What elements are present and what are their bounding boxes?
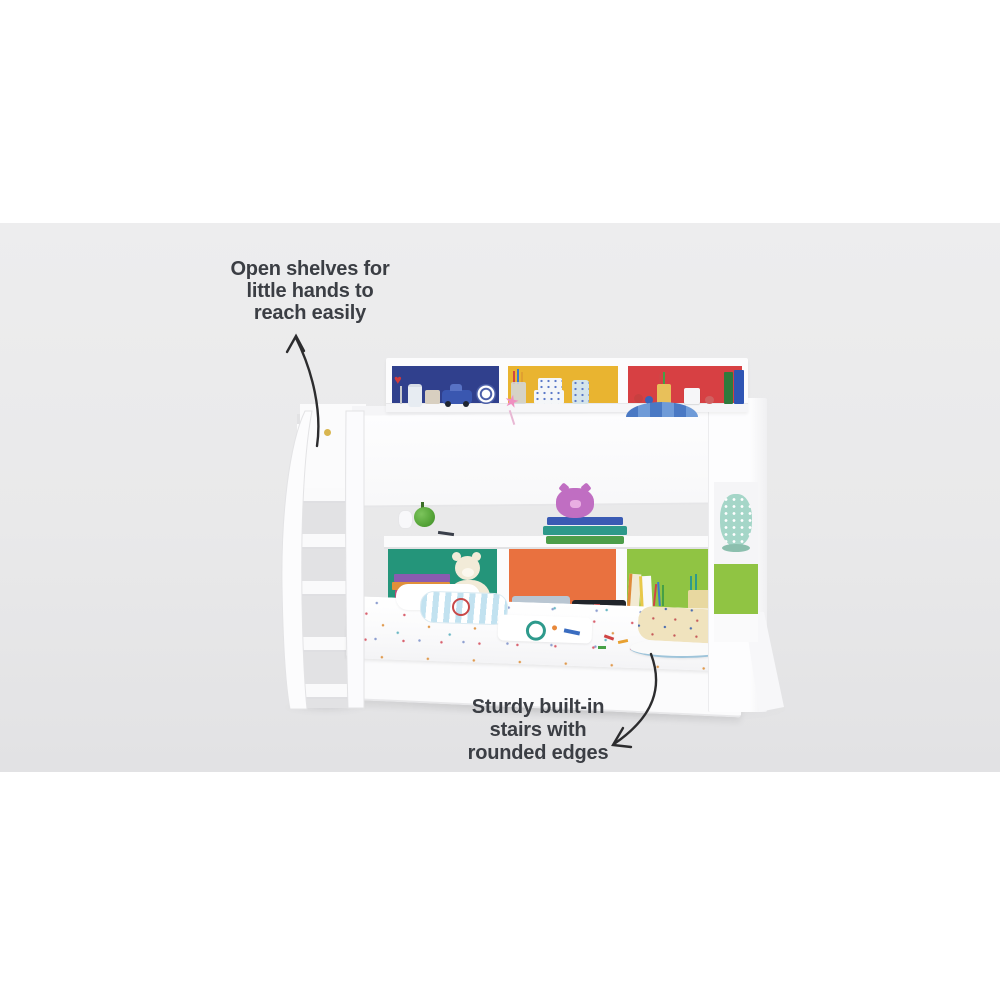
toy-canister (408, 384, 422, 407)
callout-sturdy-stairs: Sturdy built-in stairs with rounded edge… (406, 696, 670, 765)
right-cubby (714, 482, 758, 642)
upper-bunk-panel (358, 412, 711, 507)
knitted-plush-base (722, 544, 750, 552)
knitted-plush (720, 494, 752, 546)
drawing-board (498, 614, 593, 643)
stairs-top-riser (297, 424, 349, 490)
blue-toy-car (442, 390, 472, 404)
decorated-box (534, 390, 564, 404)
glass-jar (572, 380, 589, 404)
callout-line: reach easily (178, 302, 442, 324)
callout-line: stairs with (406, 719, 670, 742)
stair-tread (296, 534, 350, 549)
cubby-panel-lime (714, 564, 758, 614)
callout-line: little hands to (178, 280, 442, 302)
teddy-muzzle (462, 568, 474, 577)
cubby-lower-opening (714, 614, 758, 642)
annotated-product-image: ♥ ★ (0, 0, 1000, 1000)
callout-open-shelves: Open shelves for little hands to reach e… (178, 258, 442, 324)
red-wire-toy (452, 598, 470, 616)
callout-line: Sturdy built-in (406, 696, 670, 719)
pig-plush (556, 488, 594, 518)
stair-tread (296, 684, 350, 699)
patterned-disc-toy (476, 384, 496, 404)
blue-crayon (564, 628, 580, 635)
toy-car-cab (450, 384, 462, 391)
white-toy (684, 388, 700, 404)
teal-ring (526, 620, 547, 641)
stair-tread (296, 488, 350, 503)
white-pot (398, 510, 413, 529)
orange-dot (552, 625, 557, 630)
toy-car-wheel (445, 401, 451, 407)
heart-toy-stick (400, 386, 402, 404)
cubby-interior (714, 482, 758, 564)
green-book (724, 372, 733, 404)
stacked-book (546, 536, 624, 544)
pencil (662, 585, 664, 606)
decorated-box (538, 378, 562, 391)
stacked-book (547, 517, 623, 526)
callout-line: rounded edges (406, 742, 670, 765)
stacked-book (394, 574, 450, 582)
stair-tread (296, 637, 350, 652)
yellow-knob (324, 429, 331, 436)
heart-toy-icon: ♥ (394, 372, 402, 387)
yellow-pencil-cup (657, 384, 671, 404)
green-apple (414, 507, 435, 527)
toy-box (425, 390, 440, 404)
letterbox-bottom (0, 772, 1000, 1000)
blue-book (734, 370, 744, 404)
callout-line: Open shelves for (178, 258, 442, 280)
crayon (598, 646, 606, 649)
stair-tread (296, 581, 350, 596)
small-toy (705, 396, 714, 404)
toy-car-wheel (463, 401, 469, 407)
pig-snout (570, 500, 581, 508)
stacked-book (543, 526, 627, 536)
small-red-toy (634, 394, 643, 403)
letterbox-top (0, 0, 1000, 223)
